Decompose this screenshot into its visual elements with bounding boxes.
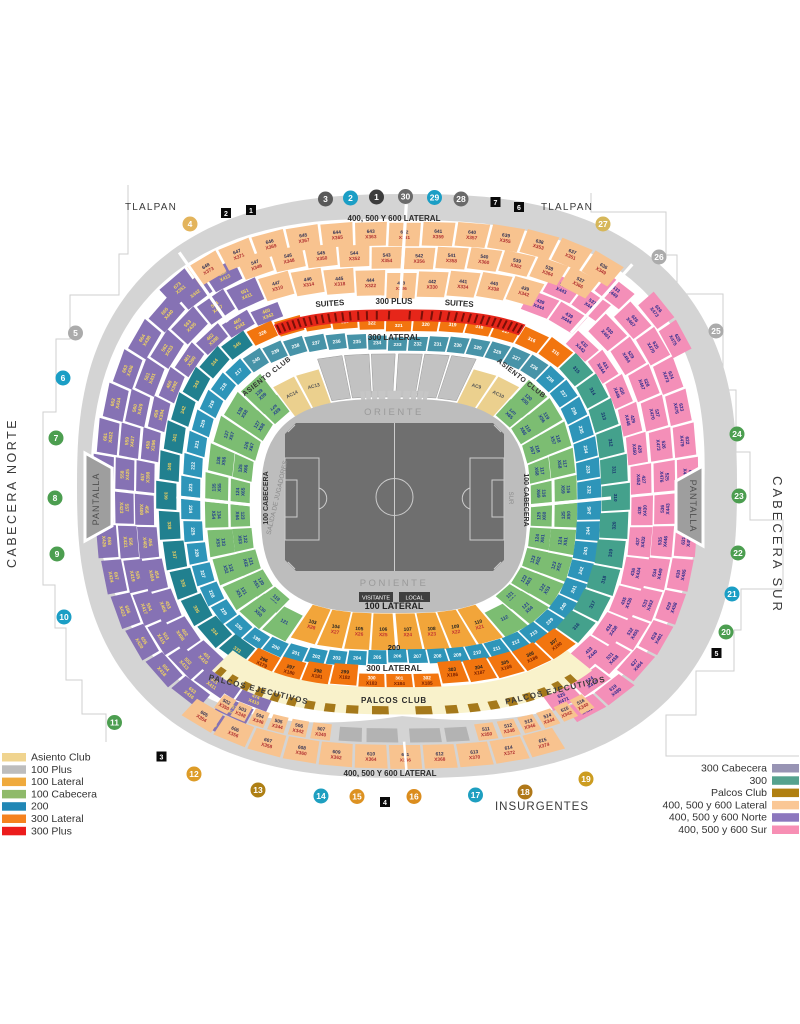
svg-text:X58: X58 xyxy=(556,460,563,469)
svg-text:7: 7 xyxy=(494,200,498,207)
svg-text:X64: X64 xyxy=(234,511,240,520)
svg-text:Asiento Club: Asiento Club xyxy=(31,752,91,764)
svg-text:X365: X365 xyxy=(332,235,344,242)
svg-text:X426: X426 xyxy=(100,536,107,548)
svg-text:X423: X423 xyxy=(118,502,124,514)
svg-text:232: 232 xyxy=(414,341,422,347)
svg-text:641: 641 xyxy=(434,229,442,235)
svg-text:543: 543 xyxy=(383,253,391,259)
svg-text:15: 15 xyxy=(352,792,362,802)
svg-text:320: 320 xyxy=(422,322,430,328)
svg-text:X22: X22 xyxy=(451,629,461,636)
svg-text:233: 233 xyxy=(393,342,401,348)
svg-text:X432: X432 xyxy=(640,536,647,548)
svg-text:9: 9 xyxy=(55,549,60,559)
svg-text:3: 3 xyxy=(160,754,164,761)
svg-text:457: 457 xyxy=(140,473,146,481)
svg-text:X69: X69 xyxy=(535,489,541,498)
svg-text:X352: X352 xyxy=(349,256,361,263)
svg-text:236: 236 xyxy=(332,339,341,346)
svg-text:19: 19 xyxy=(581,774,591,784)
svg-text:X443: X443 xyxy=(665,503,671,515)
svg-text:11: 11 xyxy=(110,718,119,728)
svg-text:319: 319 xyxy=(608,548,615,557)
svg-text:28: 28 xyxy=(456,194,466,204)
svg-text:X452: X452 xyxy=(635,474,641,486)
svg-text:231: 231 xyxy=(434,342,443,348)
svg-text:116: 116 xyxy=(540,489,546,497)
svg-text:X23: X23 xyxy=(427,631,436,637)
svg-text:X364: X364 xyxy=(365,757,377,763)
svg-text:319: 319 xyxy=(448,322,457,329)
svg-text:222: 222 xyxy=(190,461,196,470)
svg-text:2: 2 xyxy=(348,193,353,203)
svg-text:209: 209 xyxy=(453,652,462,659)
svg-text:X358: X358 xyxy=(446,258,458,265)
svg-text:8: 8 xyxy=(53,493,58,503)
svg-text:X357: X357 xyxy=(466,235,478,242)
svg-text:206: 206 xyxy=(393,653,401,659)
svg-text:X476: X476 xyxy=(658,471,664,483)
svg-text:X322: X322 xyxy=(365,283,377,289)
svg-text:311: 311 xyxy=(610,466,616,474)
svg-text:INSURGENTES: INSURGENTES xyxy=(495,801,589,813)
svg-text:26: 26 xyxy=(654,252,664,262)
svg-text:204: 204 xyxy=(353,655,362,661)
svg-text:X60: X60 xyxy=(542,511,548,520)
svg-text:321: 321 xyxy=(395,323,403,329)
svg-text:100 Plus: 100 Plus xyxy=(31,764,72,776)
svg-text:225: 225 xyxy=(189,527,195,536)
svg-text:X55: X55 xyxy=(217,483,223,492)
svg-text:300: 300 xyxy=(749,775,767,787)
svg-text:PANTALLA: PANTALLA xyxy=(688,480,698,533)
svg-text:224: 224 xyxy=(187,505,193,513)
svg-text:444: 444 xyxy=(366,278,374,284)
svg-text:X334: X334 xyxy=(457,284,469,291)
svg-text:X66: X66 xyxy=(243,464,250,473)
svg-text:300 LATERAL: 300 LATERAL xyxy=(366,663,422,673)
svg-text:TLALPAN: TLALPAN xyxy=(125,202,177,213)
svg-text:Palcos Club: Palcos Club xyxy=(711,787,767,799)
svg-text:3: 3 xyxy=(323,194,328,204)
svg-text:2: 2 xyxy=(224,211,228,218)
svg-text:226: 226 xyxy=(193,549,200,558)
svg-text:300: 300 xyxy=(368,675,376,681)
svg-text:310: 310 xyxy=(612,494,618,502)
svg-text:233: 233 xyxy=(584,465,590,474)
svg-text:244: 244 xyxy=(585,526,591,535)
svg-text:X26: X26 xyxy=(355,631,364,637)
svg-text:4: 4 xyxy=(188,219,193,229)
svg-text:300 PLUS: 300 PLUS xyxy=(376,297,414,306)
svg-text:341: 341 xyxy=(172,433,179,442)
svg-text:X473: X473 xyxy=(654,439,661,451)
svg-text:X356: X356 xyxy=(414,259,426,265)
svg-text:29: 29 xyxy=(430,193,440,203)
svg-text:200: 200 xyxy=(31,801,49,813)
svg-text:320: 320 xyxy=(612,521,618,530)
svg-text:400, 500 y 600 Lateral: 400, 500 y 600 Lateral xyxy=(663,799,768,811)
svg-text:610: 610 xyxy=(367,751,375,757)
svg-text:300 LATERAL: 300 LATERAL xyxy=(368,333,420,342)
svg-text:438: 438 xyxy=(637,506,643,514)
svg-text:234: 234 xyxy=(582,445,589,454)
svg-text:232: 232 xyxy=(585,486,591,494)
svg-text:525: 525 xyxy=(663,473,669,481)
svg-text:X56: X56 xyxy=(221,456,228,465)
svg-text:107: 107 xyxy=(404,627,412,633)
svg-text:13: 13 xyxy=(253,785,263,795)
svg-text:X186: X186 xyxy=(447,672,459,679)
svg-text:4: 4 xyxy=(383,800,387,807)
svg-text:X50: X50 xyxy=(566,511,572,520)
svg-text:PALCOS CLUB: PALCOS CLUB xyxy=(361,696,427,705)
svg-text:23: 23 xyxy=(734,491,744,501)
svg-text:340: 340 xyxy=(167,462,173,471)
svg-text:X362: X362 xyxy=(330,754,342,761)
svg-text:CABECERA SUR: CABECERA SUR xyxy=(770,476,785,614)
svg-text:106: 106 xyxy=(379,627,387,633)
svg-text:207: 207 xyxy=(413,654,421,660)
svg-text:243: 243 xyxy=(583,546,590,555)
svg-text:300 Cabecera: 300 Cabecera xyxy=(701,763,767,775)
svg-text:123: 123 xyxy=(239,512,245,520)
svg-text:456: 456 xyxy=(143,505,149,513)
svg-text:X53: X53 xyxy=(214,538,221,547)
svg-text:X24: X24 xyxy=(403,632,412,638)
svg-text:10: 10 xyxy=(59,612,69,622)
svg-text:X54: X54 xyxy=(210,511,216,520)
svg-text:X400: X400 xyxy=(138,504,144,516)
svg-text:338: 338 xyxy=(166,521,172,530)
svg-text:5: 5 xyxy=(715,651,719,658)
svg-text:X359: X359 xyxy=(432,234,444,240)
svg-text:CABECERA NORTE: CABECERA NORTE xyxy=(5,418,19,568)
svg-text:200: 200 xyxy=(388,643,401,652)
svg-text:108: 108 xyxy=(427,626,436,632)
svg-text:6: 6 xyxy=(61,373,66,383)
svg-text:16: 16 xyxy=(409,792,419,802)
svg-text:X184: X184 xyxy=(394,681,406,687)
svg-text:235: 235 xyxy=(353,339,362,345)
svg-text:400, 500 Y 600 LATERAL: 400, 500 Y 600 LATERAL xyxy=(344,769,437,778)
svg-text:X61: X61 xyxy=(540,534,547,543)
svg-text:X51: X51 xyxy=(563,537,570,546)
svg-text:558: 558 xyxy=(120,470,126,478)
svg-text:18: 18 xyxy=(520,787,530,797)
svg-text:442: 442 xyxy=(428,279,436,285)
svg-text:542: 542 xyxy=(415,253,423,259)
svg-text:400, 500 y 600 Sur: 400, 500 y 600 Sur xyxy=(678,824,767,836)
svg-text:6: 6 xyxy=(517,205,521,212)
svg-text:105: 105 xyxy=(355,626,364,632)
svg-text:X425: X425 xyxy=(125,469,131,481)
svg-text:125: 125 xyxy=(536,511,542,519)
svg-text:100 CABECERA: 100 CABECERA xyxy=(522,473,529,526)
svg-text:X182: X182 xyxy=(339,674,351,681)
svg-text:X427: X427 xyxy=(129,435,136,447)
svg-text:X183: X183 xyxy=(366,681,378,687)
svg-text:312: 312 xyxy=(606,438,613,447)
svg-text:X318: X318 xyxy=(334,281,346,288)
svg-text:12: 12 xyxy=(189,769,199,779)
svg-text:20: 20 xyxy=(721,627,731,637)
svg-text:PANTALLA: PANTALLA xyxy=(91,473,101,526)
svg-text:30: 30 xyxy=(401,192,411,202)
svg-text:X479: X479 xyxy=(678,435,685,447)
svg-text:400, 500 y 600 Norte: 400, 500 y 600 Norte xyxy=(669,812,767,824)
svg-text:301: 301 xyxy=(395,676,403,682)
svg-text:208: 208 xyxy=(433,653,442,659)
svg-text:X450: X450 xyxy=(630,444,637,456)
svg-text:X430: X430 xyxy=(643,505,649,517)
svg-text:116: 116 xyxy=(565,485,571,493)
svg-text:14: 14 xyxy=(316,791,326,801)
svg-text:7: 7 xyxy=(54,433,59,443)
svg-text:17: 17 xyxy=(471,790,481,800)
svg-text:337: 337 xyxy=(170,551,177,560)
svg-text:245: 245 xyxy=(587,506,593,514)
svg-text:X363: X363 xyxy=(365,234,377,240)
svg-text:221: 221 xyxy=(194,440,201,449)
svg-text:557: 557 xyxy=(123,504,129,512)
svg-text:223: 223 xyxy=(188,483,194,491)
svg-text:X354: X354 xyxy=(381,258,393,264)
svg-text:X398: X398 xyxy=(145,471,151,483)
svg-text:27: 27 xyxy=(598,219,608,229)
svg-text:5: 5 xyxy=(73,328,78,338)
svg-text:300 Plus: 300 Plus xyxy=(31,825,72,837)
svg-text:100 CABECERA: 100 CABECERA xyxy=(263,471,270,524)
svg-text:X402: X402 xyxy=(141,537,148,549)
svg-text:X27: X27 xyxy=(330,629,340,636)
svg-text:134: 134 xyxy=(215,511,221,519)
svg-text:X65: X65 xyxy=(241,487,247,496)
svg-text:544: 544 xyxy=(350,250,359,256)
svg-text:643: 643 xyxy=(367,229,375,235)
svg-text:X68: X68 xyxy=(533,467,540,476)
svg-text:135: 135 xyxy=(212,483,218,491)
svg-text:339: 339 xyxy=(163,492,169,500)
svg-text:X368: X368 xyxy=(434,757,446,763)
svg-text:X59: X59 xyxy=(559,485,565,494)
svg-text:125: 125 xyxy=(561,511,567,519)
svg-text:SUR: SUR xyxy=(507,492,513,505)
svg-text:230: 230 xyxy=(453,342,462,349)
svg-text:X446: X446 xyxy=(663,535,670,547)
svg-text:400, 500 Y 600 LATERAL: 400, 500 Y 600 LATERAL xyxy=(348,214,441,223)
svg-text:ORIENTE: ORIENTE xyxy=(364,407,424,418)
svg-text:X421: X421 xyxy=(121,536,128,548)
svg-text:302: 302 xyxy=(423,675,431,681)
svg-text:300 Lateral: 300 Lateral xyxy=(31,813,84,825)
svg-text:22: 22 xyxy=(733,548,743,558)
svg-text:X396: X396 xyxy=(150,439,157,451)
svg-text:24: 24 xyxy=(732,429,742,439)
svg-text:1: 1 xyxy=(249,208,253,215)
svg-text:203: 203 xyxy=(332,655,341,662)
svg-text:25: 25 xyxy=(711,326,721,336)
svg-text:536: 536 xyxy=(660,504,666,512)
svg-text:TLALPAN: TLALPAN xyxy=(541,202,593,213)
svg-text:100 Cabecera: 100 Cabecera xyxy=(31,788,97,800)
svg-text:100 LATERAL: 100 LATERAL xyxy=(365,601,424,611)
svg-text:X185: X185 xyxy=(421,681,433,687)
svg-text:541: 541 xyxy=(448,253,457,259)
svg-text:X330: X330 xyxy=(426,284,438,290)
svg-text:X25: X25 xyxy=(379,632,388,638)
svg-text:21: 21 xyxy=(727,589,737,599)
svg-text:PONIENTE: PONIENTE xyxy=(360,578,429,589)
svg-text:612: 612 xyxy=(436,751,444,757)
svg-text:427: 427 xyxy=(640,476,646,484)
svg-text:X432: X432 xyxy=(108,431,115,443)
svg-text:1: 1 xyxy=(374,192,379,202)
svg-text:X63: X63 xyxy=(236,535,243,544)
svg-text:X370: X370 xyxy=(469,754,481,761)
svg-text:124: 124 xyxy=(235,487,241,495)
svg-text:100 Lateral: 100 Lateral xyxy=(31,776,84,788)
svg-text:205: 205 xyxy=(373,655,381,661)
